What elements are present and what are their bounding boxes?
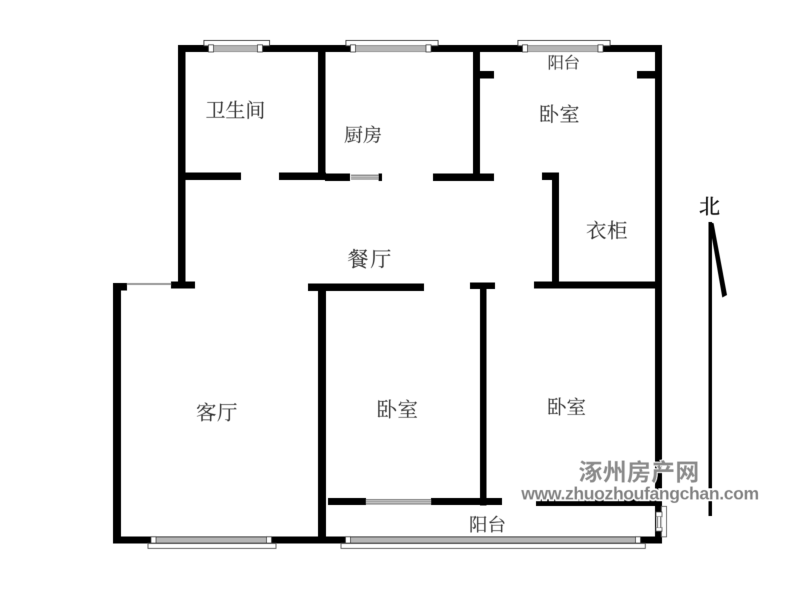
svg-text:www.zhuozhoufangchan.com: www.zhuozhoufangchan.com	[520, 484, 759, 504]
